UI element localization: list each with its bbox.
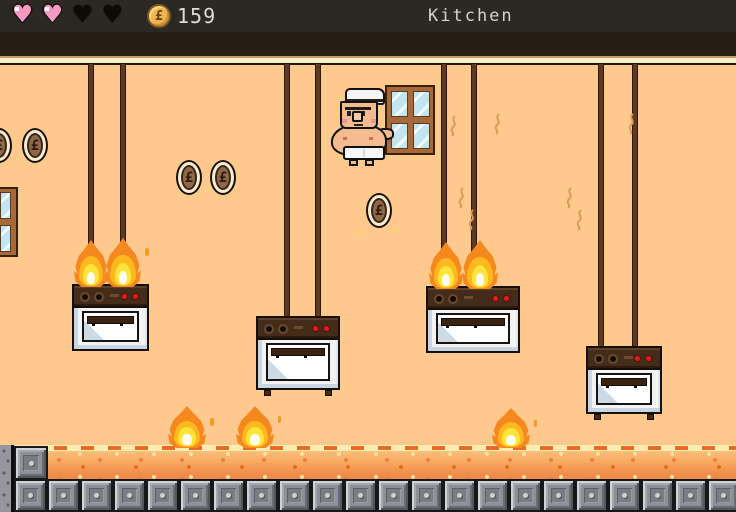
stove-panel-dash (110, 294, 119, 297)
stove-body (426, 310, 520, 353)
oven-door-handle (601, 378, 647, 386)
rope (284, 64, 290, 320)
level-title: Kitchen (428, 6, 514, 26)
stove-knob-icon (448, 294, 458, 304)
stove-flame (105, 238, 141, 287)
window-pane (0, 225, 11, 252)
metal-block (608, 479, 641, 512)
chef-head (340, 101, 378, 129)
heat-squiggle-icon (492, 112, 504, 136)
health-hearts: ♥♥♥♥ (8, 0, 127, 31)
player-character (331, 88, 395, 166)
stove-indicator-light (646, 356, 651, 361)
window-pane (413, 123, 430, 149)
metal-block (707, 479, 736, 512)
oven-door (82, 311, 139, 342)
heart-empty-icon: ♥ (98, 0, 127, 31)
window-pane (413, 91, 430, 117)
metal-block (377, 479, 410, 512)
flame-spark (278, 416, 281, 423)
stove-indicator-light (324, 326, 329, 331)
coin-pound-glyph: £ (375, 204, 383, 218)
oven-door (266, 343, 330, 381)
coin-counter: £ 159 (147, 4, 216, 28)
metal-block (14, 446, 48, 480)
coin-pound-glyph: £ (185, 171, 193, 185)
oven-door-handle (441, 318, 505, 326)
chef-towel (343, 146, 385, 160)
flame-spark (534, 420, 537, 427)
metal-block (443, 479, 476, 512)
metal-block (278, 479, 311, 512)
flame-spark (145, 248, 149, 256)
ground-dashes (0, 446, 736, 450)
stove-knob-icon (278, 324, 288, 334)
stove-knob-icon (264, 324, 274, 334)
coin: £ (176, 160, 202, 195)
stove-flame (74, 240, 108, 287)
stove-indicator-light (493, 296, 498, 301)
stove-flame (462, 240, 498, 289)
ground-fire (492, 408, 530, 448)
metal-block (575, 479, 608, 512)
stove-idle (256, 316, 340, 396)
coin: £ (22, 128, 48, 163)
metal-block (212, 479, 245, 512)
metal-block (146, 479, 179, 512)
heart-filled-icon: ♥ (8, 0, 37, 31)
metal-block-row (14, 479, 736, 512)
metal-block (674, 479, 707, 512)
coin-icon: £ (147, 4, 171, 28)
metal-block (410, 479, 443, 512)
coin-pound-glyph: £ (0, 139, 3, 153)
stove-panel-dash (624, 356, 633, 359)
ground-dirt (0, 451, 736, 479)
rope (632, 64, 638, 350)
stove-indicator-light (313, 326, 318, 331)
metal-block (641, 479, 674, 512)
heart-empty-icon: ♥ (68, 0, 97, 31)
stove-body (586, 370, 662, 414)
rope (315, 64, 321, 320)
stove-indicator-light (122, 294, 127, 299)
coin-pound-glyph: £ (155, 10, 163, 23)
stove-burning (72, 284, 149, 351)
stove-idle (586, 346, 662, 420)
metal-block (47, 479, 80, 512)
ground-fire (168, 406, 206, 448)
heat-squiggle-icon (448, 114, 460, 138)
stove-control-panel (426, 286, 520, 310)
stove-body (256, 340, 340, 390)
stove-burning (426, 286, 520, 353)
chef-leg (349, 159, 358, 166)
sparkle (394, 228, 398, 232)
stove-leg (594, 414, 601, 420)
metal-block (80, 479, 113, 512)
stove-knob-icon (434, 294, 444, 304)
metal-block (344, 479, 377, 512)
metal-block (245, 479, 278, 512)
stove-indicator-light (504, 296, 509, 301)
stove-panel-dash (294, 326, 303, 329)
stove-leg (325, 390, 332, 396)
heat-squiggle-icon (564, 186, 576, 210)
stove-control-panel (72, 284, 149, 308)
coin: £ (366, 193, 392, 228)
rope (598, 64, 604, 350)
heat-squiggle-icon (456, 186, 468, 210)
oven-door-handle (271, 348, 325, 356)
metal-block (179, 479, 212, 512)
ceiling (0, 32, 736, 65)
stove-knob-icon (594, 354, 604, 364)
window-pane (0, 192, 11, 219)
stove-knob-icon (608, 354, 618, 364)
oven-door-handle (87, 316, 134, 324)
metal-block (113, 479, 146, 512)
stove-control-panel (586, 346, 662, 370)
heart-filled-icon: ♥ (38, 0, 67, 31)
ground-fire (236, 406, 274, 448)
heat-squiggle-icon (626, 112, 638, 136)
stove-control-panel (256, 316, 340, 340)
metal-block (476, 479, 509, 512)
ground-terrain (0, 445, 736, 479)
game-screen[interactable]: £ £ £ £ £ (0, 0, 736, 512)
window-left (0, 187, 18, 257)
stove-body (72, 308, 149, 351)
stove-leg (264, 390, 271, 396)
heat-squiggle-icon (574, 208, 586, 232)
hud-bar: ♥♥♥♥ £ 159 Kitchen (0, 0, 736, 32)
chef-leg (365, 159, 374, 166)
sparkle (359, 231, 363, 235)
coin-pound-glyph: £ (219, 171, 227, 185)
oven-door (596, 373, 652, 405)
metal-block (311, 479, 344, 512)
oven-door (436, 313, 510, 344)
chef-nose (352, 111, 363, 122)
flame-spark (210, 418, 214, 426)
coin-count: 159 (177, 4, 216, 28)
metal-block (14, 479, 47, 512)
stove-flame (429, 242, 463, 289)
metal-block (509, 479, 542, 512)
stove-indicator-light (635, 356, 640, 361)
coin-pound-glyph: £ (31, 139, 39, 153)
coin: £ (210, 160, 236, 195)
stone-column (0, 445, 14, 512)
metal-block (542, 479, 575, 512)
heat-squiggle-icon (466, 208, 478, 232)
stove-knob-icon (80, 292, 90, 302)
stove-knob-icon (94, 292, 104, 302)
stove-indicator-light (133, 294, 138, 299)
stove-panel-dash (464, 296, 473, 299)
stove-leg (647, 414, 654, 420)
